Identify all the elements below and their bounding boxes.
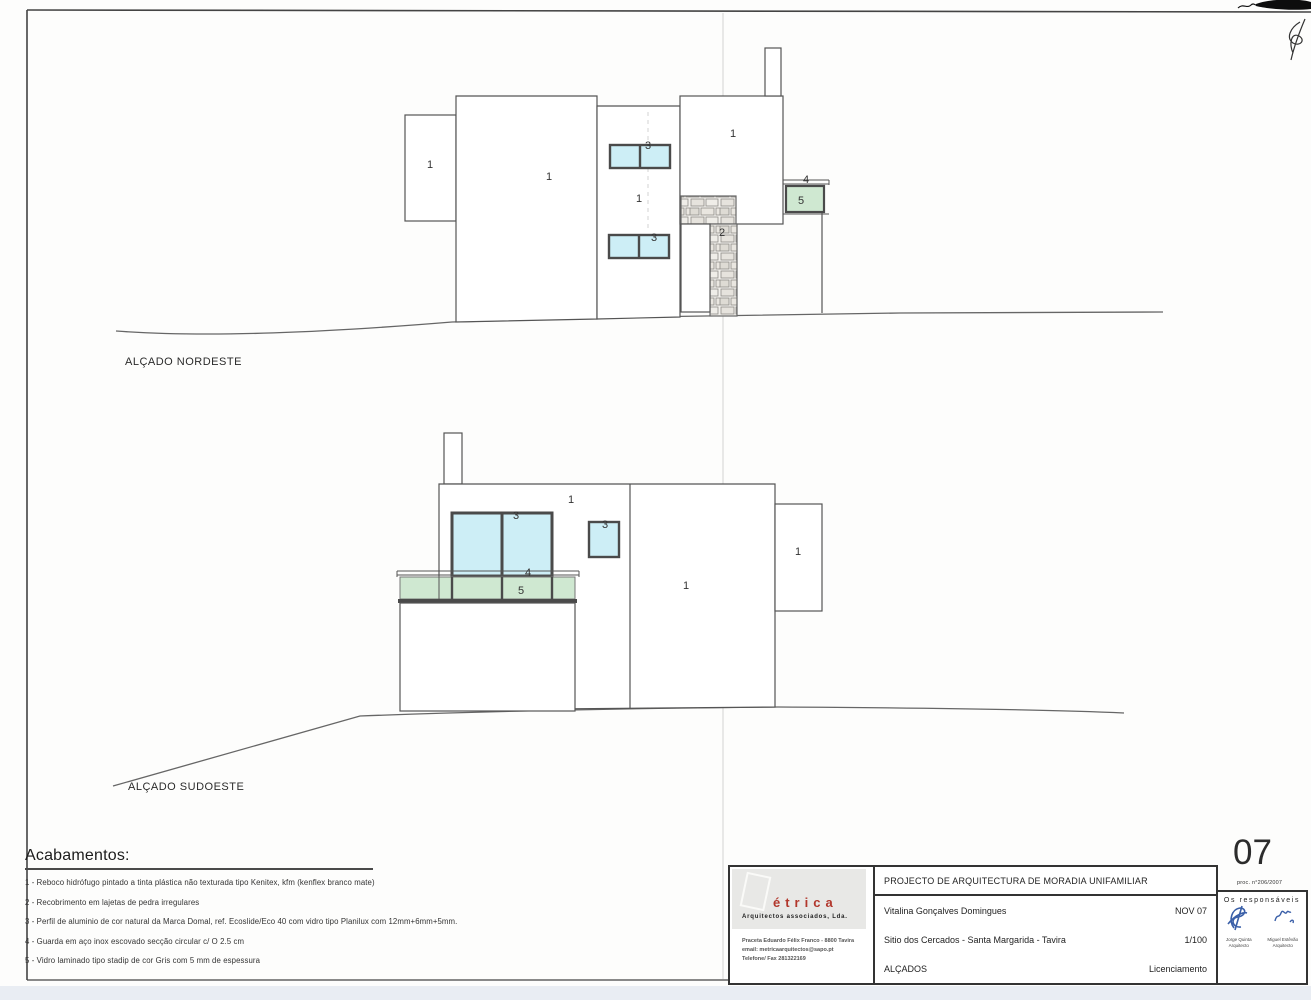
location-row: Sitio dos Cercados - Santa Margarida - T…: [875, 925, 1216, 954]
legend-item: 4 - Guarda em aço inox escovado secção c…: [25, 937, 705, 946]
signer-names: Jorge Quinta Arquitecto Miguel Estêvão A…: [1218, 937, 1306, 949]
process-number: proc. n°206/2007: [1237, 880, 1282, 886]
elevation-nordeste: 1 1 1 1 3 3 2 4 5: [116, 48, 1163, 334]
finish-label: 5: [798, 195, 804, 207]
legend-item: 5 - Vidro laminado tipo stadip de cor Gr…: [25, 956, 705, 965]
balcony-base: [400, 603, 575, 711]
chimney: [765, 48, 781, 96]
scanner-edge: [0, 986, 1311, 1000]
stone-cladding-upper: [681, 196, 736, 224]
legend-item: 1 - Reboco hidrófugo pintado a tinta plá…: [25, 878, 705, 887]
date: NOV 07: [1175, 906, 1207, 916]
finish-label: 1: [795, 546, 801, 558]
finish-label: 4: [803, 174, 809, 186]
balcony-guard: [397, 571, 579, 601]
finish-label: 3: [513, 510, 519, 522]
legend-title: Acabamentos:: [25, 847, 373, 870]
elevation-title-sudoeste: ALÇADO SUDOESTE: [128, 781, 244, 793]
finish-label: 2: [719, 227, 725, 239]
finish-label: 1: [427, 159, 433, 171]
legend-item: 3 - Perfil de aluminio de cor natural da…: [25, 917, 705, 926]
finishes-legend: Acabamentos: 1 - Reboco hidrófugo pintad…: [25, 847, 705, 976]
signer-role: Arquitecto: [1267, 943, 1298, 949]
firm-subtitle: Arquitectos associados, Lda.: [742, 914, 848, 920]
sheet-row: ALÇADOS Licenciamento: [875, 954, 1216, 983]
signer-role: Arquitecto: [1226, 943, 1252, 949]
tower-volume: [597, 106, 680, 319]
finish-label: 1: [568, 494, 574, 506]
scale: 1/100: [1184, 935, 1207, 945]
firm-cell: étrica Arquitectos associados, Lda. Prac…: [730, 867, 873, 983]
finish-label: 3: [645, 140, 651, 152]
project-info-cell: PROJECTO DE ARQUITECTURA DE MORADIA UNIF…: [873, 867, 1216, 983]
legend-item: 2 - Recobrimento em lajetas de pedra irr…: [25, 898, 705, 907]
client-name: Vitalina Gonçalves Domingues: [884, 906, 1006, 916]
firm-address: Praceta Eduardo Félix Franco - 8800 Tavi…: [742, 937, 871, 946]
scan-marks: [1238, 0, 1311, 60]
elevation-title-nordeste: ALÇADO NORDESTE: [125, 356, 242, 368]
signer-left: Jorge Quinta Arquitecto: [1226, 937, 1252, 949]
ground-line: [113, 707, 1124, 786]
project-title: PROJECTO DE ARQUITECTURA DE MORADIA UNIF…: [875, 867, 1216, 896]
signature-right-icon: [1275, 911, 1293, 923]
main-volume: [456, 96, 597, 322]
finish-label: 4: [525, 567, 531, 579]
ink-blob: [1256, 0, 1311, 10]
firm-phone: Telefone/ Fax 281322169: [742, 955, 871, 964]
finish-label: 5: [518, 585, 524, 597]
drawing-sheet: 1 1 1 1 3 3 2 4 5: [0, 0, 1311, 1000]
firm-email: email: metricaarquitectos@sapo.pt: [742, 946, 871, 955]
elevation-sudoeste: 1 1 1 3 3 4 5: [113, 433, 1124, 786]
signer-right: Miguel Estêvão Arquitecto: [1267, 937, 1298, 949]
finish-label: 3: [602, 519, 608, 531]
nordeste-window-upper: [610, 145, 670, 168]
logo-mark-icon: [740, 872, 772, 911]
firm-logo: étrica Arquitectos associados, Lda.: [732, 869, 866, 929]
pen-scribble: [1238, 4, 1259, 8]
responsibles-heading: Os responsáveis: [1218, 897, 1306, 904]
title-block: étrica Arquitectos associados, Lda. Prac…: [728, 865, 1218, 985]
sudoeste-window-large: [452, 513, 552, 577]
phase: Licenciamento: [1149, 964, 1207, 974]
nordeste-window-lower: [609, 235, 669, 258]
finish-label: 1: [683, 580, 689, 592]
finish-label: 1: [730, 128, 736, 140]
firm-contact: Praceta Eduardo Félix Franco - 8800 Tavi…: [732, 937, 871, 964]
responsibles-cell: Os responsáveis Jorge Quinta Arquitecto …: [1216, 890, 1308, 985]
sheet-title: ALÇADOS: [884, 964, 927, 974]
finish-label: 3: [651, 232, 657, 244]
chimney: [444, 433, 462, 484]
finish-label: 1: [636, 193, 642, 205]
client-row: Vitalina Gonçalves Domingues NOV 07: [875, 896, 1216, 925]
wall-niche: [681, 224, 710, 312]
signature-left-icon: [1228, 906, 1247, 930]
site-location: Sitio dos Cercados - Santa Margarida - T…: [884, 935, 1066, 945]
sheet-number: 07: [1233, 833, 1272, 873]
finish-label: 1: [546, 171, 552, 183]
signatures: [1220, 904, 1304, 932]
signature-squiggle: [1289, 19, 1305, 60]
firm-name: étrica: [773, 895, 838, 910]
